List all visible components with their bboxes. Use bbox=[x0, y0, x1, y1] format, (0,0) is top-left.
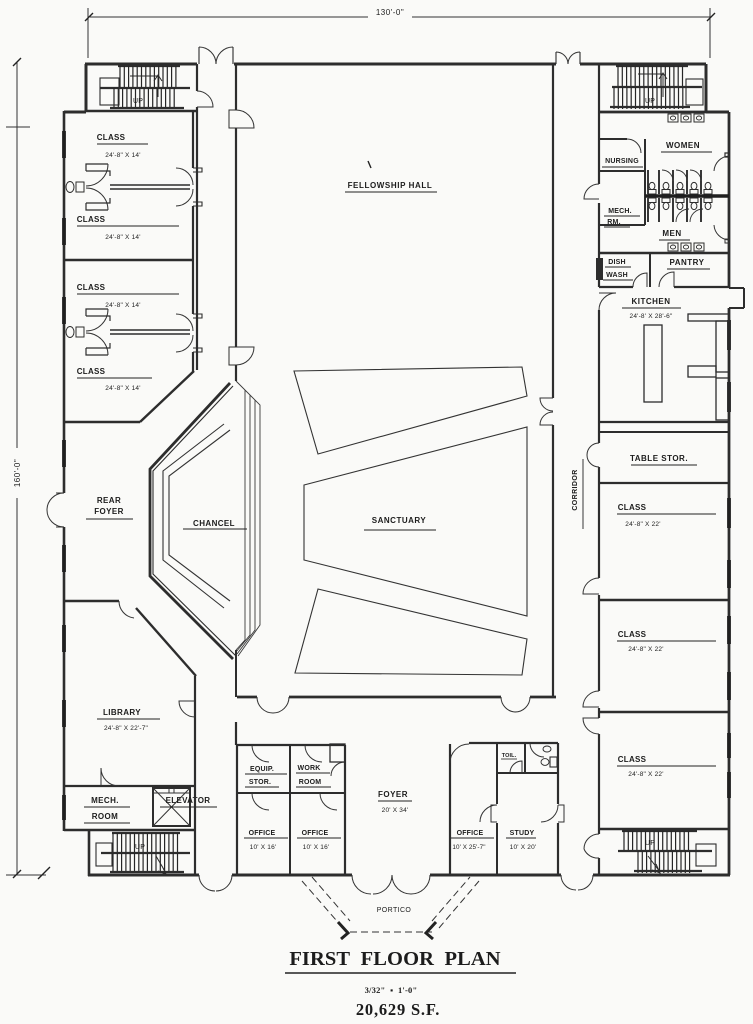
svg-text:TOIL.: TOIL. bbox=[502, 753, 517, 759]
svg-text:DISH: DISH bbox=[608, 259, 626, 266]
svg-text:24'-8" X 14': 24'-8" X 14' bbox=[105, 385, 140, 392]
svg-text:CLASS: CLASS bbox=[618, 503, 647, 512]
svg-text:CLASS: CLASS bbox=[618, 755, 647, 764]
svg-text:130'-0": 130'-0" bbox=[376, 8, 404, 17]
svg-text:24'-8" X 14': 24'-8" X 14' bbox=[105, 302, 140, 309]
svg-text:CORRIDOR: CORRIDOR bbox=[572, 469, 579, 510]
svg-text:FOYER: FOYER bbox=[94, 507, 124, 516]
svg-text:OFFICE: OFFICE bbox=[302, 830, 329, 837]
svg-text:FIRST FLOOR PLAN: FIRST FLOOR PLAN bbox=[289, 948, 500, 970]
svg-text:CLASS: CLASS bbox=[77, 367, 106, 376]
svg-text:UP: UP bbox=[645, 98, 655, 105]
svg-text:SANCTUARY: SANCTUARY bbox=[372, 516, 427, 525]
svg-text:10' X 16': 10' X 16' bbox=[303, 844, 330, 851]
svg-text:20,629 S.F.: 20,629 S.F. bbox=[356, 1000, 440, 1019]
svg-text:24'-8" X 14': 24'-8" X 14' bbox=[105, 152, 140, 159]
svg-text:ROOM: ROOM bbox=[92, 812, 119, 821]
svg-text:MECH.: MECH. bbox=[608, 208, 632, 215]
svg-text:20' X 34': 20' X 34' bbox=[382, 807, 409, 814]
svg-text:UP: UP bbox=[645, 840, 655, 847]
svg-text:CLASS: CLASS bbox=[618, 630, 647, 639]
svg-text:CLASS: CLASS bbox=[97, 133, 126, 142]
svg-text:PANTRY: PANTRY bbox=[670, 258, 705, 267]
svg-text:160'-0": 160'-0" bbox=[13, 459, 22, 487]
svg-text:WASH: WASH bbox=[606, 272, 628, 279]
svg-text:MECH.: MECH. bbox=[91, 796, 119, 805]
svg-text:WOMEN: WOMEN bbox=[666, 141, 700, 150]
svg-text:OFFICE: OFFICE bbox=[457, 830, 484, 837]
svg-text:24'-8" X 22': 24'-8" X 22' bbox=[625, 521, 660, 528]
svg-text:ELEVATOR: ELEVATOR bbox=[166, 796, 211, 805]
svg-text:FELLOWSHIP HALL: FELLOWSHIP HALL bbox=[348, 181, 433, 190]
svg-text:24'-8" X 22': 24'-8" X 22' bbox=[628, 771, 663, 778]
svg-text:3/32" ▪ 1'-0": 3/32" ▪ 1'-0" bbox=[365, 985, 418, 995]
svg-text:MEN: MEN bbox=[662, 229, 681, 238]
svg-text:ROOM: ROOM bbox=[299, 779, 322, 786]
svg-text:PORTICO: PORTICO bbox=[377, 907, 412, 914]
svg-text:UP: UP bbox=[133, 98, 143, 105]
svg-text:CLASS: CLASS bbox=[77, 215, 106, 224]
svg-text:UP: UP bbox=[135, 844, 145, 851]
svg-text:LIBRARY: LIBRARY bbox=[103, 708, 141, 717]
svg-text:24'-8" X 14': 24'-8" X 14' bbox=[105, 234, 140, 241]
svg-text:WORK: WORK bbox=[298, 765, 321, 772]
svg-text:TABLE STOR.: TABLE STOR. bbox=[630, 454, 688, 463]
svg-text:STOR.: STOR. bbox=[249, 779, 271, 786]
svg-text:OFFICE: OFFICE bbox=[249, 830, 276, 837]
svg-text:24'-8' X 28'-6": 24'-8' X 28'-6" bbox=[630, 313, 673, 320]
svg-text:CHANCEL: CHANCEL bbox=[193, 519, 235, 528]
svg-text:NURSING: NURSING bbox=[605, 158, 639, 165]
svg-text:RM.: RM. bbox=[607, 219, 620, 226]
svg-text:EQUIP.: EQUIP. bbox=[250, 766, 274, 773]
svg-text:KITCHEN: KITCHEN bbox=[631, 297, 670, 306]
svg-text:STUDY: STUDY bbox=[510, 830, 535, 837]
svg-text:24'-8" X 22': 24'-8" X 22' bbox=[628, 646, 663, 653]
svg-text:REAR: REAR bbox=[97, 496, 121, 505]
svg-text:FOYER: FOYER bbox=[378, 790, 408, 799]
svg-text:24'-8" X 22'-7": 24'-8" X 22'-7" bbox=[104, 725, 149, 732]
svg-text:10' X 25'-7": 10' X 25'-7" bbox=[452, 844, 485, 851]
svg-text:10' X 20': 10' X 20' bbox=[510, 844, 537, 851]
svg-text:CLASS: CLASS bbox=[77, 283, 106, 292]
svg-text:10' X 16': 10' X 16' bbox=[250, 844, 277, 851]
